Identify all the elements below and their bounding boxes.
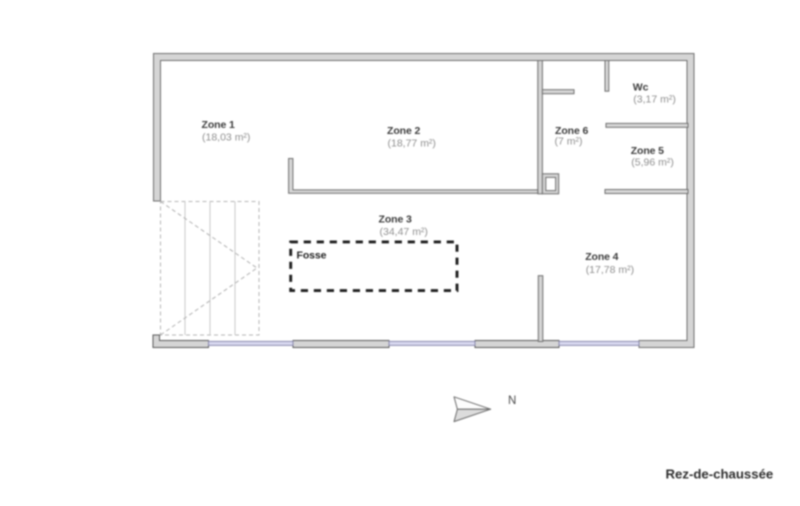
svg-text:Zone 3: Zone 3 xyxy=(379,214,412,226)
svg-text:Zone 2: Zone 2 xyxy=(387,125,420,137)
svg-text:(34,47 m²): (34,47 m²) xyxy=(380,226,428,238)
svg-text:Zone 5: Zone 5 xyxy=(631,145,664,157)
svg-text:(17,78 m²): (17,78 m²) xyxy=(586,264,634,276)
svg-text:Rez-de-chaussée: Rez-de-chaussée xyxy=(666,467,774,482)
svg-text:(5,96 m²): (5,96 m²) xyxy=(631,156,674,168)
svg-text:N: N xyxy=(508,395,516,407)
svg-text:(18,03 m²): (18,03 m²) xyxy=(202,131,250,143)
svg-text:Fosse: Fosse xyxy=(297,250,327,262)
svg-text:(18,77 m²): (18,77 m²) xyxy=(388,138,436,150)
svg-text:(7 m²): (7 m²) xyxy=(555,135,583,147)
svg-text:Zone 4: Zone 4 xyxy=(585,251,618,263)
svg-text:(3,17 m²): (3,17 m²) xyxy=(633,93,676,105)
svg-text:Wc: Wc xyxy=(633,81,649,93)
svg-text:Zone 1: Zone 1 xyxy=(202,119,235,131)
